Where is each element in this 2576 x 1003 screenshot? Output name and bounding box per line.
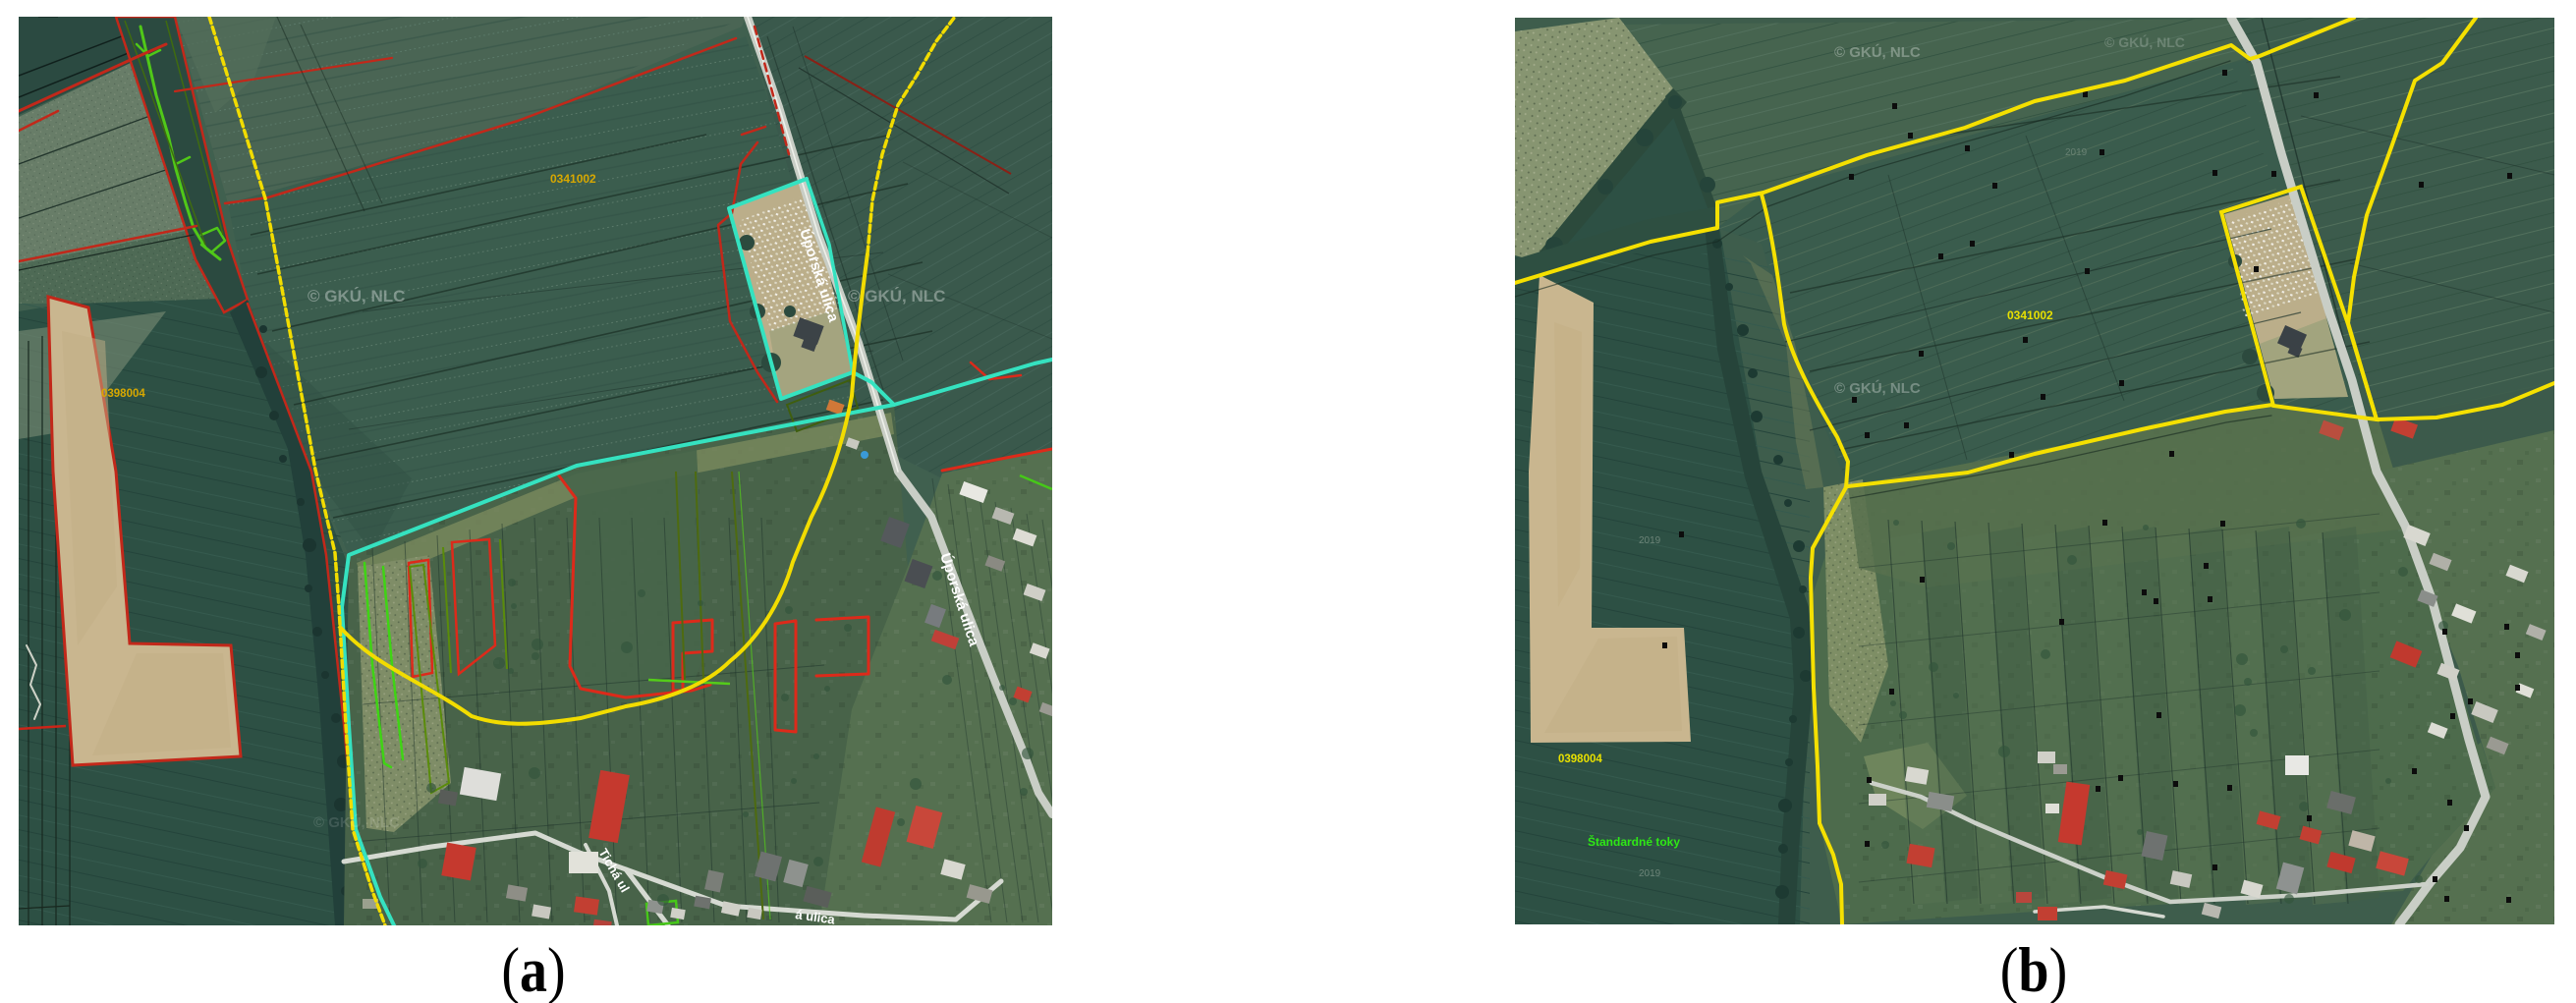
svg-text:© GKÚ, NLC: © GKÚ, NLC (308, 287, 405, 306)
svg-text:© GKÚ, NLC: © GKÚ, NLC (848, 287, 945, 306)
svg-text:© GKÚ, NLC: © GKÚ, NLC (313, 813, 400, 831)
svg-text:2019: 2019 (2065, 147, 2088, 158)
svg-text:0341002: 0341002 (550, 172, 596, 186)
svg-text:0398004: 0398004 (101, 388, 145, 400)
svg-text:© GKÚ, NLC: © GKÚ, NLC (1834, 43, 1921, 61)
svg-text:0398004: 0398004 (1558, 753, 1602, 765)
svg-text:2019: 2019 (1639, 868, 1661, 879)
svg-text:2019: 2019 (1639, 535, 1661, 546)
svg-text:© GKÚ, NLC: © GKÚ, NLC (2104, 33, 2185, 50)
svg-text:Štandardné toky: Štandardné toky (1588, 834, 1680, 849)
svg-text:0341002: 0341002 (2007, 308, 2053, 322)
svg-text:© GKÚ, NLC: © GKÚ, NLC (1834, 379, 1921, 397)
